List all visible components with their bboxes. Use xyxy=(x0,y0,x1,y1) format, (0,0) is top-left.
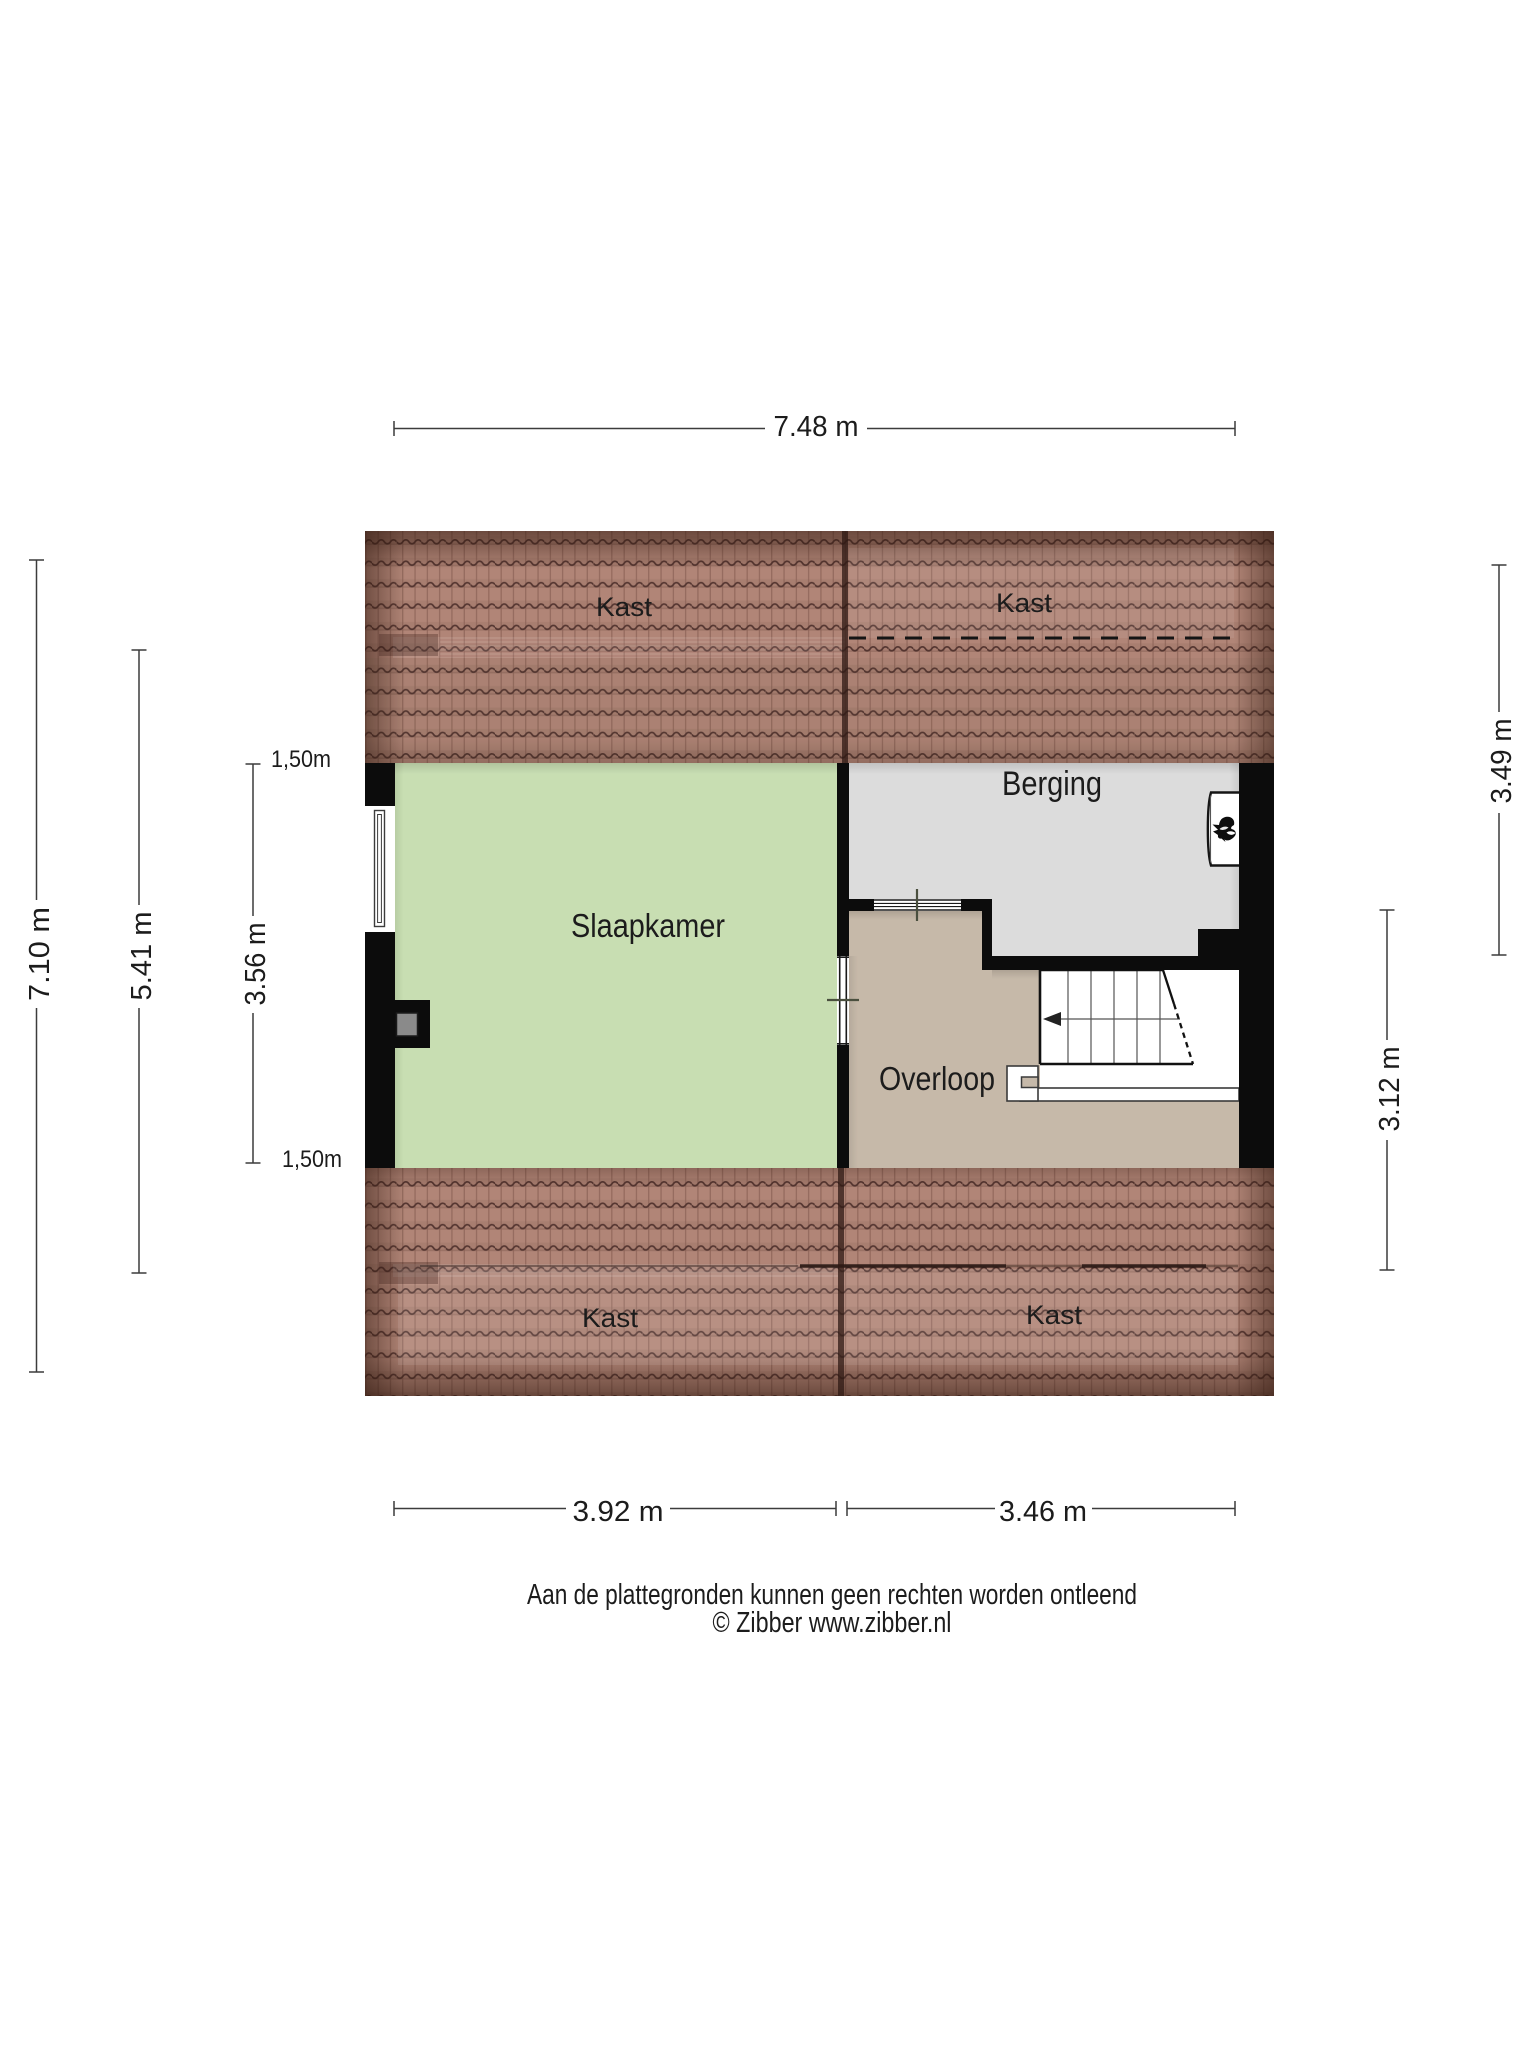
svg-text:3.49 m: 3.49 m xyxy=(1486,719,1518,804)
svg-text:Slaapkamer: Slaapkamer xyxy=(571,907,725,944)
svg-text:Berging: Berging xyxy=(1002,765,1102,803)
svg-text:7.10 m: 7.10 m xyxy=(24,907,56,1001)
svg-text:5.41 m: 5.41 m xyxy=(126,912,158,1001)
svg-text:Kast: Kast xyxy=(1026,1300,1083,1330)
svg-text:3.46 m: 3.46 m xyxy=(999,1496,1087,1528)
svg-text:7.48 m: 7.48 m xyxy=(774,411,859,443)
svg-text:Kast: Kast xyxy=(596,592,653,622)
svg-text:3.12 m: 3.12 m xyxy=(1374,1047,1406,1132)
svg-text:3.56 m: 3.56 m xyxy=(240,923,272,1006)
svg-text:1,50m: 1,50m xyxy=(271,746,331,773)
svg-text:3.92 m: 3.92 m xyxy=(573,1496,664,1528)
svg-text:Kast: Kast xyxy=(996,588,1053,618)
svg-text:Overloop: Overloop xyxy=(879,1060,995,1097)
svg-text:1,50m: 1,50m xyxy=(282,1146,342,1173)
svg-text:Kast: Kast xyxy=(582,1303,639,1333)
svg-text:© Zibber www.zibber.nl: © Zibber www.zibber.nl xyxy=(713,1607,952,1639)
